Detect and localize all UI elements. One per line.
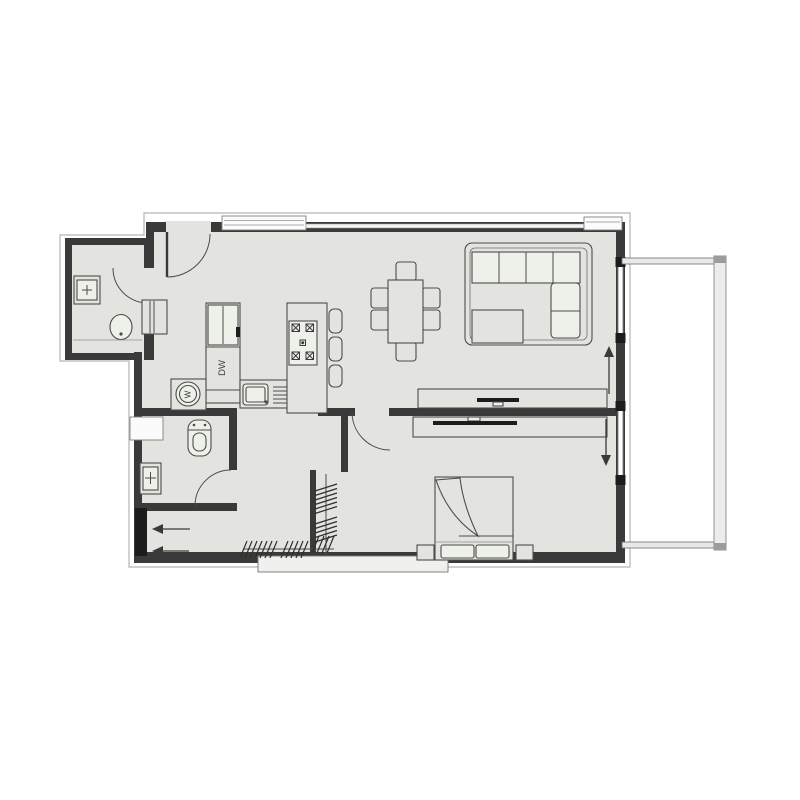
tv (477, 398, 519, 402)
top-door-opening (166, 221, 211, 233)
bar-stool (329, 337, 342, 361)
dining-chair (422, 310, 440, 330)
tv-stand (493, 402, 503, 406)
floor-plan-canvas: DW (0, 0, 800, 800)
dining-table (388, 280, 423, 343)
pillow (441, 545, 474, 558)
washing-machine: W (171, 379, 206, 410)
sliding-glass-door (618, 266, 623, 336)
balcony-railing (714, 256, 726, 550)
bathroom-vanity (140, 463, 161, 494)
wall-recess (130, 417, 163, 440)
washer-label: W (184, 390, 193, 398)
toilet (188, 420, 211, 456)
floor-plan: DW (0, 0, 800, 800)
dining-chair (396, 262, 416, 281)
dishwasher-label: DW (217, 360, 228, 376)
window (584, 217, 622, 230)
railing-post (714, 256, 726, 263)
railing-post (714, 543, 726, 550)
dining-chair (371, 310, 389, 330)
duct-shaft (142, 300, 167, 334)
entry-door (135, 508, 147, 556)
bar-stools (329, 309, 342, 387)
bar-stool (329, 365, 342, 387)
sliding-glass-door (618, 410, 623, 478)
dining-chair (422, 288, 440, 308)
fridge-handle (236, 327, 240, 337)
bar-stool (329, 309, 342, 333)
tv (433, 421, 517, 425)
pillow (476, 545, 509, 558)
toilet (110, 315, 132, 340)
glazing-strip (306, 224, 584, 228)
dining-chair (371, 288, 389, 308)
balcony (622, 256, 726, 550)
nightstand (516, 545, 533, 560)
tv-stand (468, 417, 480, 421)
nightstand (417, 545, 434, 560)
faucet (264, 400, 267, 403)
window (222, 216, 306, 230)
balcony-edge-top (622, 258, 718, 264)
balcony-edge-bottom (622, 542, 718, 548)
media-console (413, 417, 607, 437)
dining-chair (396, 342, 416, 361)
coffee-table (472, 310, 523, 343)
